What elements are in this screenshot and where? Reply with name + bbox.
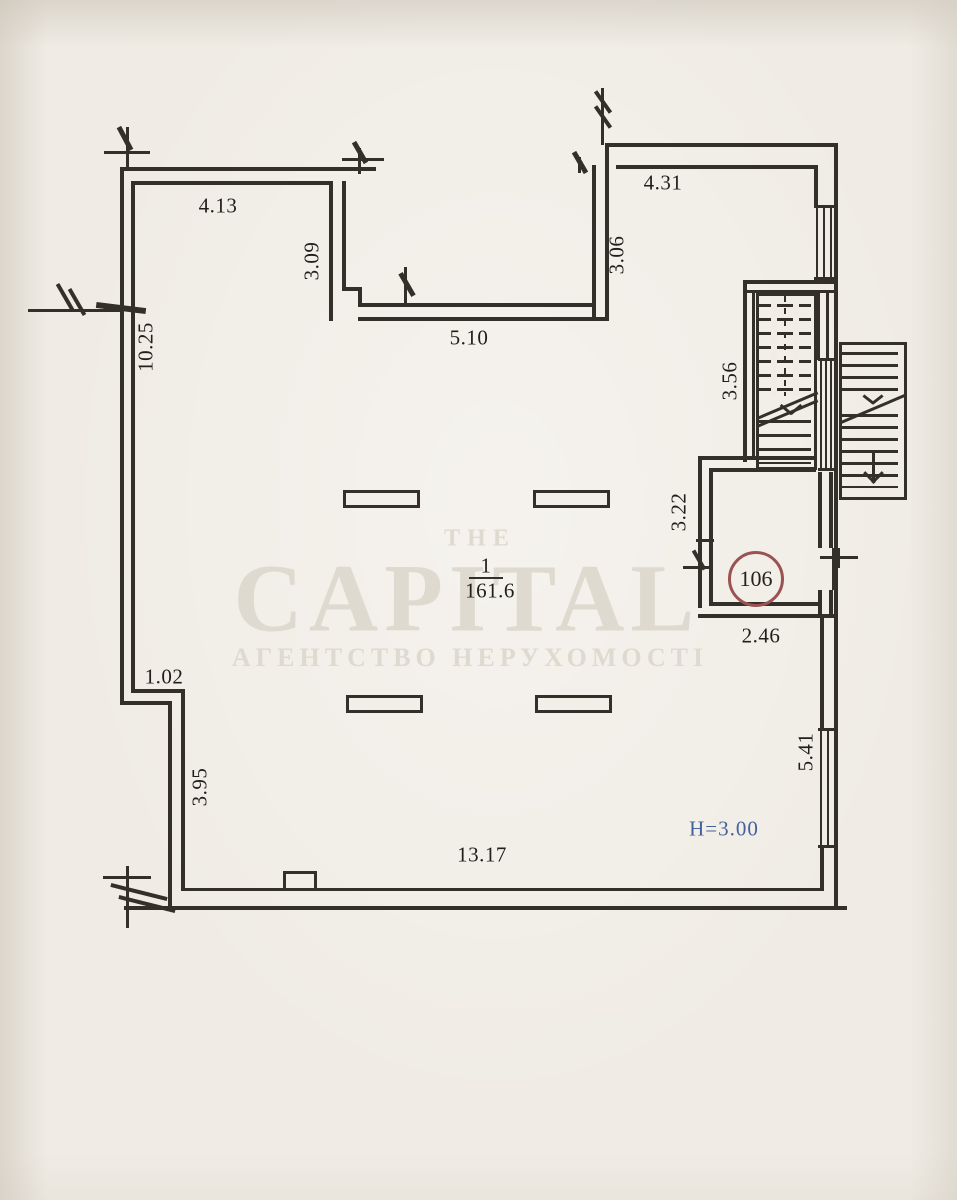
dim-label-room106-width: 2.46 [742,624,781,649]
wall-segment [818,472,822,548]
wall-segment [816,290,820,360]
wall-segment [135,181,333,185]
exterior-stair-treads [842,352,898,394]
column [346,695,423,713]
dim-label-left-lower-height: 3.95 [188,768,213,807]
wall-segment [124,906,847,910]
wall-segment [814,165,818,207]
wall-segment [342,181,346,289]
room-number-label: 1 [481,554,492,579]
dim-label-stair-height: 3.56 [718,362,743,401]
dimension-tick [683,566,713,569]
dimension-tick [696,539,714,542]
watermark-subtitle: АГЕНТСТВО НЕРУХОМОСТІ [232,643,708,673]
room-106-badge: 106 [728,551,784,607]
dim-label-top-right-width: 4.31 [644,171,683,196]
dimension-tick [398,272,415,297]
wall-segment [605,143,609,321]
wall-segment [709,468,713,606]
wall-segment [124,167,376,171]
room-area-label: 161.6 [465,579,515,604]
wall-segment [743,280,747,462]
break-mark [104,151,150,154]
wall-pilaster [283,871,317,874]
break-mark [117,126,134,151]
wall-segment [120,701,172,705]
wall-segment [120,167,124,705]
dim-label-top-left-width: 4.13 [199,194,238,219]
wall-segment [698,456,702,608]
wall-segment [131,181,135,692]
stair-center-line [784,296,786,396]
stair-tread-dash-gap [793,304,799,396]
column [535,695,612,713]
dim-label-bottom-width: 13.17 [457,843,507,868]
wall-segment [358,317,608,321]
wall-segment [752,290,755,460]
wall-segment [605,143,838,147]
dim-label-room106-height: 3.22 [667,493,692,532]
wall-segment [616,165,816,169]
dim-label-left-height: 10.25 [134,322,159,372]
break-mark [103,876,151,879]
wall-segment [743,280,838,284]
dim-label-partition-height: 3.09 [300,242,325,281]
wall-segment [360,303,594,307]
column [533,490,610,508]
wall-segment [709,468,816,472]
wall-pilaster [283,871,286,890]
wall-segment [825,360,827,470]
room-106-number: 106 [740,566,773,592]
wall-segment [181,888,823,891]
wall-segment [329,181,333,321]
dim-label-right-lower-height: 5.41 [794,733,819,772]
break-mark [28,309,120,312]
dim-label-left-step: 1.02 [145,665,184,690]
wall-segment [181,689,185,891]
dim-label-inner-width: 5.10 [450,326,489,351]
wall-segment [820,618,824,728]
wall-segment [826,293,829,358]
column [343,490,420,508]
wall-segment [818,590,822,618]
height-note: H=3.00 [689,817,759,842]
window-hatch [820,731,836,845]
floor-plan-scan: THE CAPITAL АГЕНТСТВО НЕРУХОМОСТІ [0,0,957,1200]
dimension-tick [837,548,840,568]
wall-segment [698,614,838,618]
door-leaf-line [832,548,834,590]
wall-segment [820,360,822,470]
wall-pilaster [314,871,317,890]
wall-segment [592,165,596,317]
wall-segment [820,848,824,891]
wall-segment [698,456,816,460]
wall-segment [168,701,172,910]
stair-tread-dash-gap [771,304,777,396]
wall-segment [829,590,833,618]
wall-segment [818,468,836,471]
wall-segment [829,472,833,548]
window-hatch [816,208,834,278]
wall-segment [830,360,832,470]
wall-segment [131,689,184,693]
dim-label-top-right-height: 3.06 [605,236,630,275]
